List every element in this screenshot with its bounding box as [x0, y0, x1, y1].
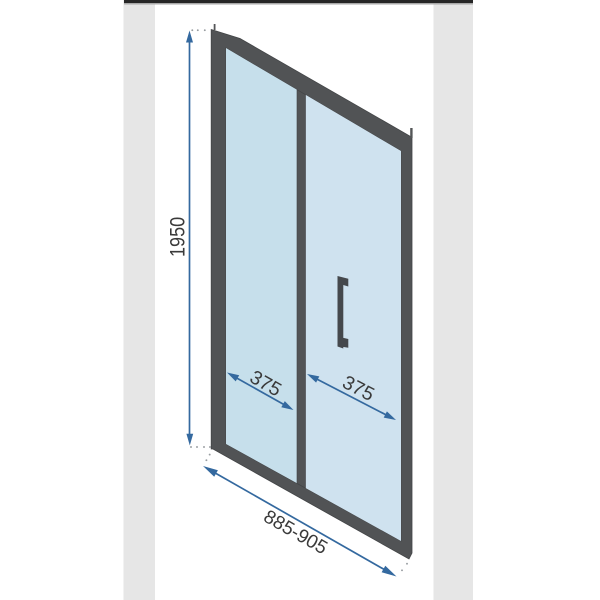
svg-text:1950: 1950 [166, 217, 190, 257]
